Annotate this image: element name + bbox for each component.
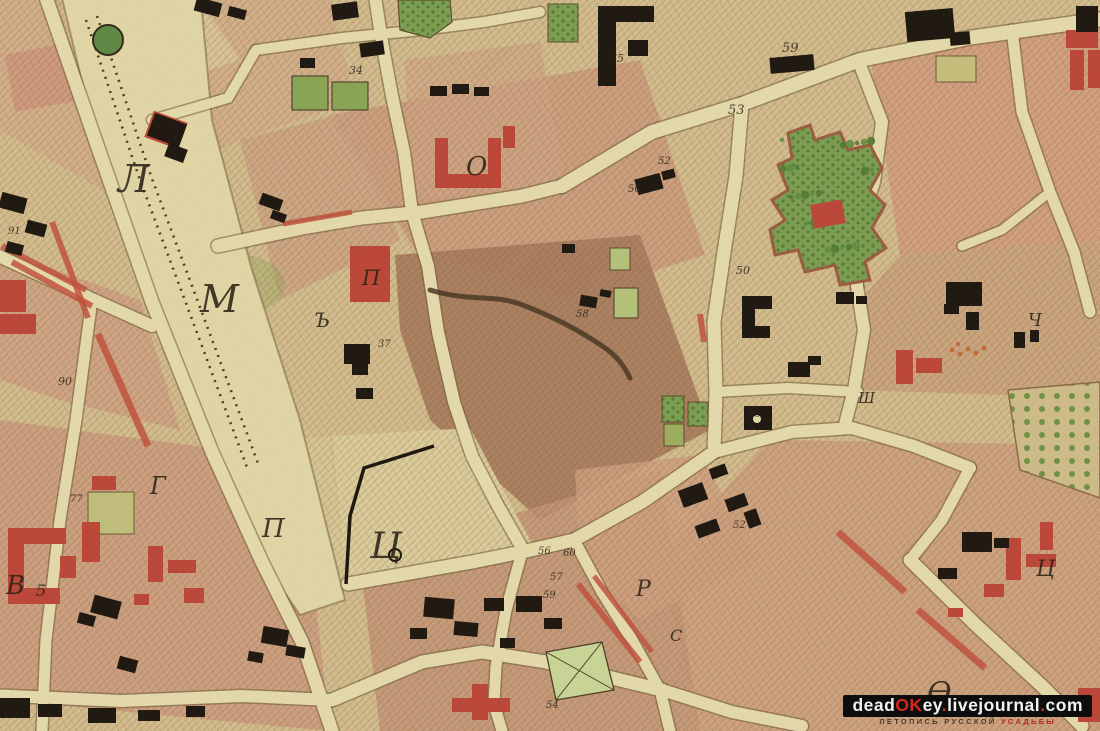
watermark-segment: livejournal — [947, 695, 1040, 715]
paper-grain — [0, 0, 1100, 731]
watermark-segment: OK — [895, 695, 922, 715]
watermark: deadOKey.livejournal.com ЛЕТОПИСЬ РУССКО… — [843, 695, 1092, 726]
watermark-url: deadOKey.livejournal.com — [843, 695, 1092, 717]
watermark-tagline: ЛЕТОПИСЬ РУССКОЙ УСАДЬБЫ — [843, 718, 1092, 726]
watermark-tagline-part: ЛЕТОПИСЬ РУССКОЙ — [879, 717, 1001, 726]
watermark-segment: com — [1046, 695, 1083, 715]
watermark-tagline-part: УСАДЬБЫ — [1001, 717, 1056, 726]
watermark-segment: dead — [852, 695, 895, 715]
map-canvas: ЛМОПЪЦПГВРСЧШЦѲ3459655352565037589091465… — [0, 0, 1100, 731]
watermark-segment: ey — [923, 695, 942, 715]
map-image[interactable]: ЛМОПЪЦПГВРСЧШЦѲ3459655352565037589091465… — [0, 0, 1100, 731]
